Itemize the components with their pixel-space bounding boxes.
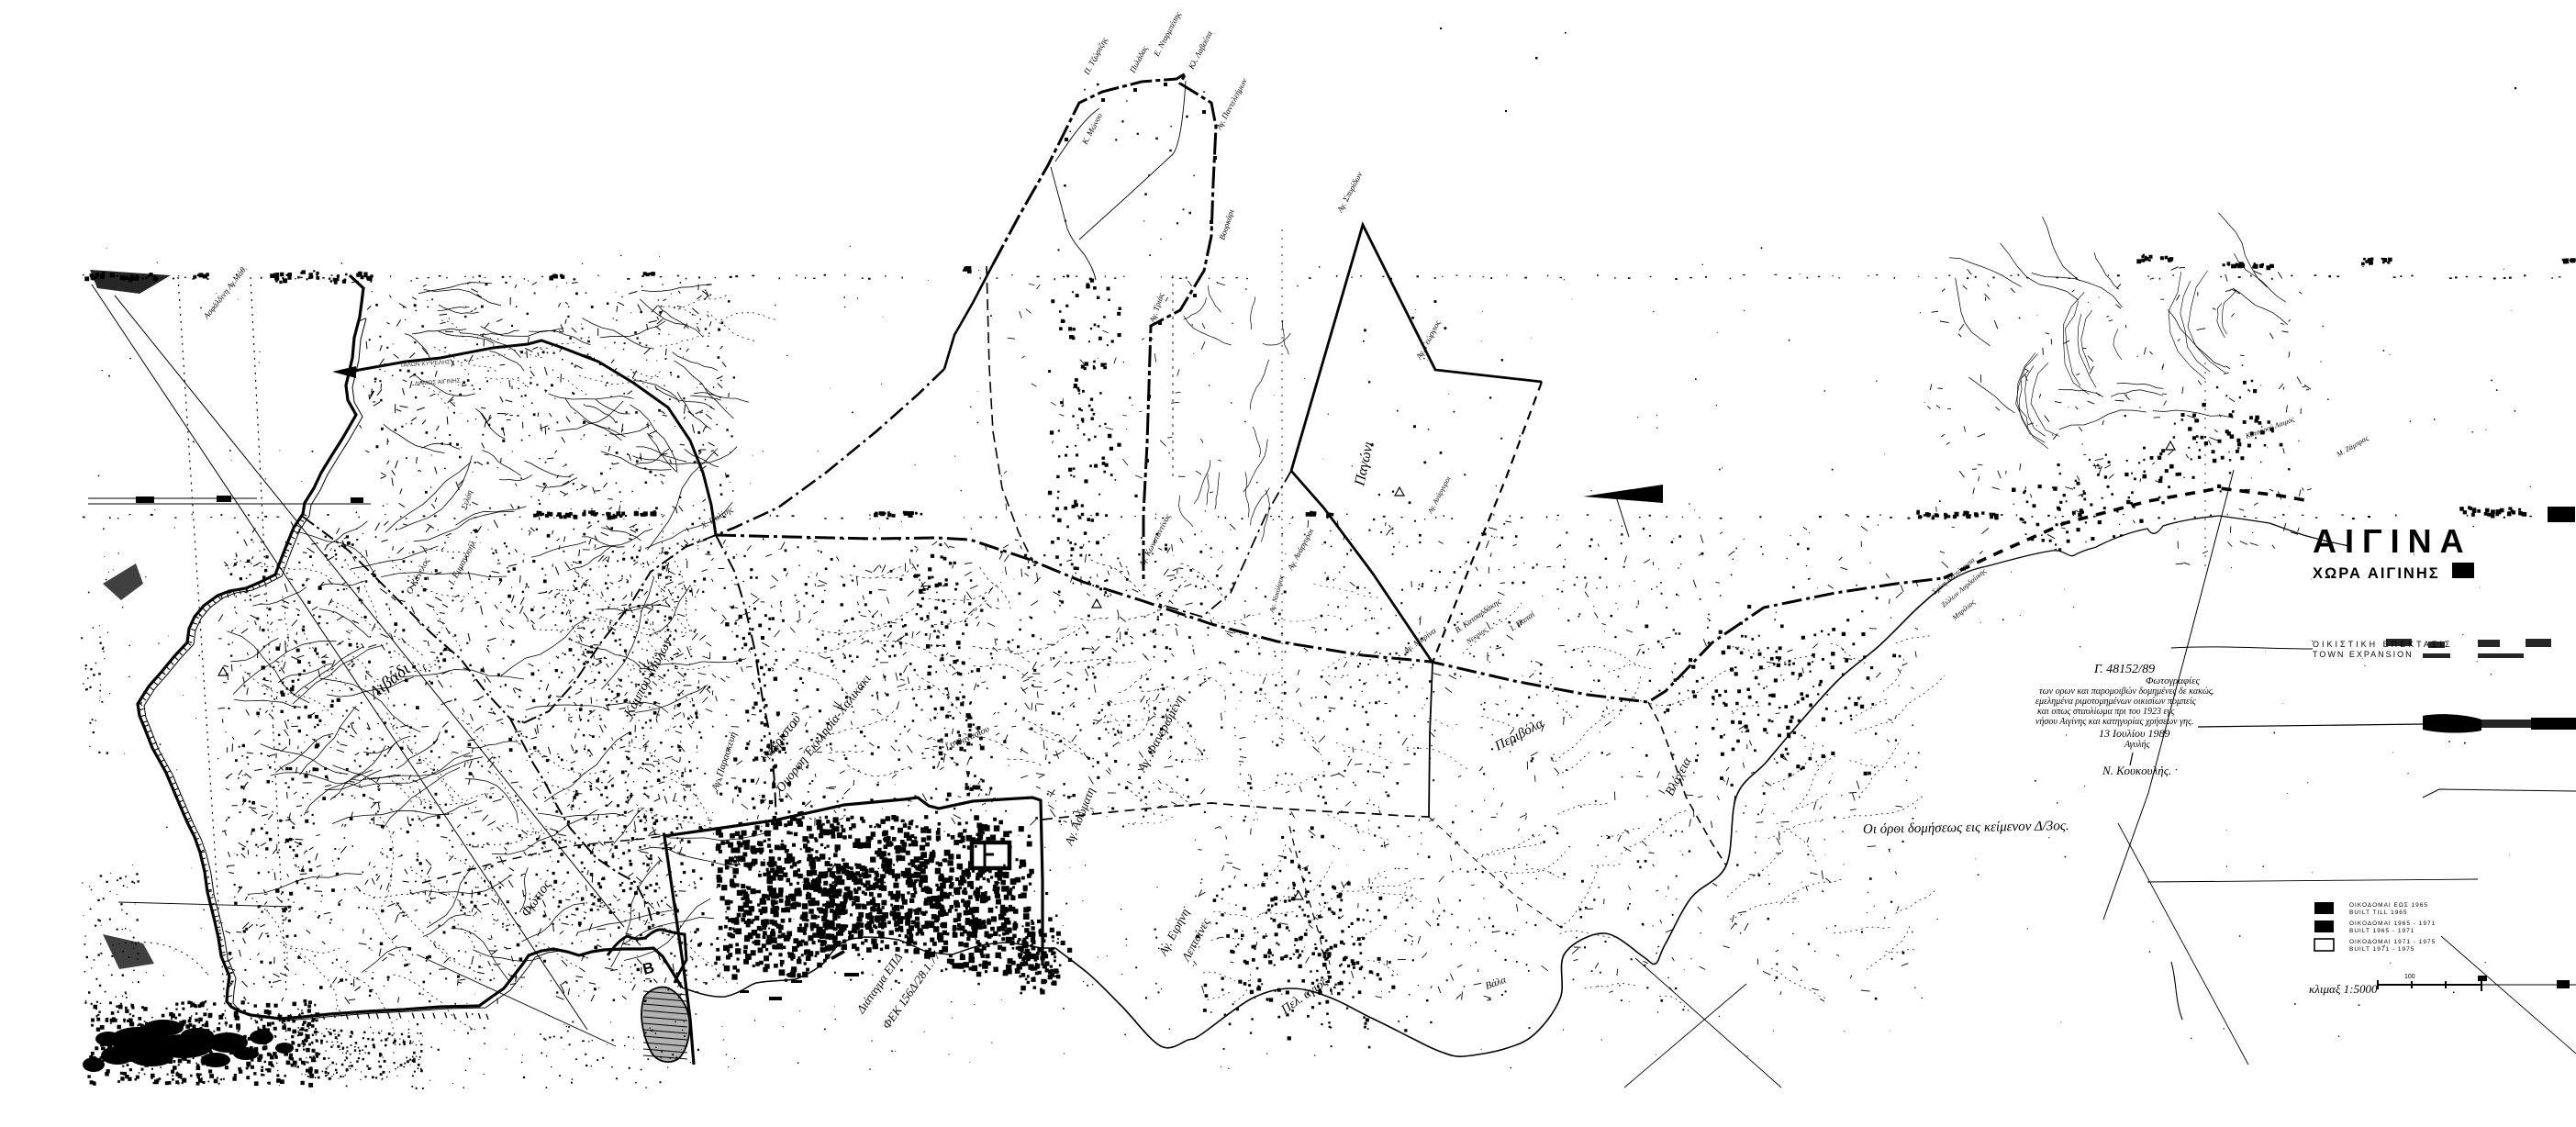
svg-text:13 Ιουλίου 1989: 13 Ιουλίου 1989 bbox=[2099, 727, 2170, 740]
svg-text:ΟΙΚΟΔΟΜΑΙ ΕΩΣ 1965: ΟΙΚΟΔΟΜΑΙ ΕΩΣ 1965 bbox=[2349, 902, 2428, 909]
svg-text:ΑΙΓΙΝΑ: ΑΙΓΙΝΑ bbox=[2313, 522, 2472, 560]
svg-text:Ν. Κουκουλής.: Ν. Κουκουλής. bbox=[2102, 764, 2171, 777]
svg-text:TOWN EXPANSION: TOWN EXPANSION bbox=[2313, 650, 2414, 659]
svg-text:και οπως σταυλίωμα πρι του 192: και οπως σταυλίωμα πρι του 1923 εγς bbox=[2037, 707, 2175, 717]
svg-text:Γ. 48152/89: Γ. 48152/89 bbox=[2093, 663, 2155, 676]
svg-text:BUILT 1971 - 1975: BUILT 1971 - 1975 bbox=[2349, 946, 2414, 953]
svg-text:των ορων και παρομοιβών δομημέ: των ορων και παρομοιβών δομημένες δε κακ… bbox=[2039, 686, 2214, 697]
svg-text:νήσου Αιγίνης και κατηγορίας χ: νήσου Αιγίνης και κατηγορίας χρήσεων γης… bbox=[2035, 717, 2194, 727]
svg-text:ΧΩΡΑ ΑΙΓΙΝΗΣ: ΧΩΡΑ ΑΙΓΙΝΗΣ bbox=[2313, 565, 2440, 582]
svg-text:εμελημένα ριμοτομημένων οικισί: εμελημένα ριμοτομημένων οικισίων πομπείς bbox=[2035, 697, 2197, 707]
svg-text:ΟΙΚΟΔΟΜΑΙ 1965 - 1971: ΟΙΚΟΔΟΜΑΙ 1965 - 1971 bbox=[2349, 921, 2436, 927]
svg-text:Αγυλής: Αγυλής bbox=[2124, 740, 2150, 750]
svg-text:BUILT TILL 1965: BUILT TILL 1965 bbox=[2349, 909, 2408, 916]
svg-text:ΟΙΚΟΔΟΜΑΙ 1971 - 1975: ΟΙΚΟΔΟΜΑΙ 1971 - 1975 bbox=[2349, 939, 2436, 945]
svg-text:κλιμαξ 1:5000: κλιμαξ 1:5000 bbox=[2309, 982, 2378, 996]
svg-text:Φωτογραφίες: Φωτογραφίες bbox=[2146, 675, 2200, 686]
svg-text:BUILT 1965 - 1971: BUILT 1965 - 1971 bbox=[2349, 928, 2414, 934]
svg-text:100: 100 bbox=[2404, 974, 2415, 980]
